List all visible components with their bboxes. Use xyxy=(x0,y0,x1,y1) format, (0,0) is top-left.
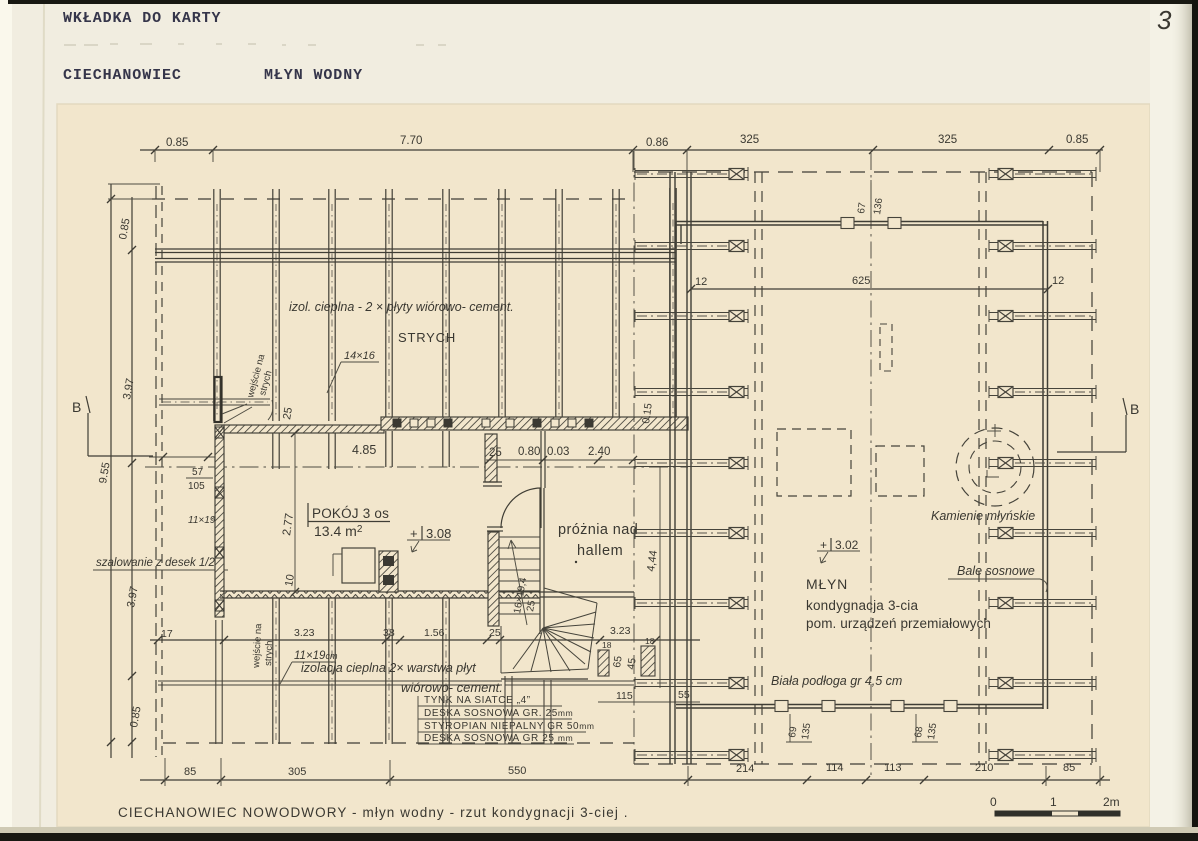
svg-text:325: 325 xyxy=(740,134,759,146)
svg-text:strych: strych xyxy=(263,640,275,666)
svg-text:wiórowo- cement.: wiórowo- cement. xyxy=(401,680,503,695)
svg-text:+: + xyxy=(410,526,418,541)
svg-text:0.03: 0.03 xyxy=(547,446,569,458)
svg-text:DESKA SOSNOWA GR 25 mm: DESKA SOSNOWA GR 25 mm xyxy=(424,733,573,744)
svg-text:7.70: 7.70 xyxy=(400,135,422,147)
svg-text:10: 10 xyxy=(283,573,297,587)
svg-text:1.56: 1.56 xyxy=(424,627,445,639)
svg-text:3: 3 xyxy=(1157,5,1172,35)
svg-text:3.23: 3.23 xyxy=(294,627,315,639)
svg-text:210: 210 xyxy=(975,762,993,774)
svg-text:izol. cieplna - 2 × płyty wiór: izol. cieplna - 2 × płyty wiórowo- cemen… xyxy=(289,300,514,314)
svg-text:CIECHANOWIEC: CIECHANOWIEC xyxy=(63,67,182,84)
svg-text:Kamienie młyńskie: Kamienie młyńskie xyxy=(931,509,1035,523)
svg-text:65: 65 xyxy=(611,655,625,668)
svg-text:25: 25 xyxy=(281,406,295,420)
svg-text:szalowanie z desek 1/2”: szalowanie z desek 1/2” xyxy=(96,557,220,569)
svg-text:0: 0 xyxy=(990,795,997,809)
svg-text:13.4 m2: 13.4 m2 xyxy=(314,523,363,539)
svg-text:hallem: hallem xyxy=(577,543,623,559)
svg-text:3.02: 3.02 xyxy=(835,538,859,552)
svg-text:próżnia nad: próżnia nad xyxy=(558,522,638,538)
svg-text:3.23: 3.23 xyxy=(610,625,631,637)
svg-text:2m: 2m xyxy=(1103,795,1120,809)
svg-text:67: 67 xyxy=(856,201,869,214)
svg-text:325: 325 xyxy=(938,134,957,146)
svg-text:17: 17 xyxy=(161,628,173,640)
svg-text:B: B xyxy=(72,399,81,415)
svg-text:18: 18 xyxy=(645,636,655,646)
svg-text:0.85: 0.85 xyxy=(1066,134,1088,146)
svg-text:115: 115 xyxy=(616,690,633,702)
svg-text:STYROPIAN NIEPALNY GR 50mm: STYROPIAN NIEPALNY GR 50mm xyxy=(424,721,595,732)
svg-text:4.85: 4.85 xyxy=(352,443,376,457)
svg-text:0.86: 0.86 xyxy=(646,137,668,149)
svg-text:38: 38 xyxy=(383,627,395,639)
svg-text:STRYCH: STRYCH xyxy=(398,330,456,345)
svg-text:85: 85 xyxy=(184,766,196,778)
svg-text:214: 214 xyxy=(736,763,754,775)
svg-text:11×19: 11×19 xyxy=(188,515,216,526)
svg-text:25: 25 xyxy=(489,627,501,639)
svg-text:1: 1 xyxy=(1050,795,1057,809)
svg-text:izolacja cieplna 2× warstwa p: izolacja cieplna 2× warstwa płyt xyxy=(301,661,476,675)
svg-text:550: 550 xyxy=(508,765,526,777)
svg-text:18: 18 xyxy=(602,640,612,650)
svg-text:113: 113 xyxy=(884,762,902,774)
svg-text:45: 45 xyxy=(625,657,639,670)
svg-text:55: 55 xyxy=(678,689,690,701)
svg-text:12: 12 xyxy=(1052,275,1064,287)
svg-text:68: 68 xyxy=(913,725,926,738)
svg-text:114: 114 xyxy=(826,762,844,774)
svg-text:105: 105 xyxy=(188,481,205,492)
svg-text:POKÓJ 3 os: POKÓJ 3 os xyxy=(312,506,389,521)
svg-text:Bale sosnowe: Bale sosnowe xyxy=(957,564,1035,578)
svg-text:MŁYN: MŁYN xyxy=(806,576,848,592)
svg-text:305: 305 xyxy=(288,766,306,778)
svg-text:69: 69 xyxy=(787,725,800,738)
svg-text:+: + xyxy=(820,538,827,552)
svg-text:B: B xyxy=(1130,401,1139,417)
svg-text:0.80: 0.80 xyxy=(518,446,540,458)
svg-text:pom. urządzeń przemiałowych: pom. urządzeń przemiałowych xyxy=(806,616,991,631)
svg-text:kondygnacja 3-cia: kondygnacja 3-cia xyxy=(806,598,919,613)
svg-text:625: 625 xyxy=(852,275,870,287)
svg-text:Biała podłoga gr 4,5 cm: Biała podłoga gr 4,5 cm xyxy=(771,674,902,688)
svg-text:CIECHANOWIEC NOWODWORY - mł: CIECHANOWIEC NOWODWORY - młyn wodny - rz… xyxy=(118,805,629,820)
svg-text:MŁYN WODNY: MŁYN WODNY xyxy=(264,67,363,84)
svg-text:12: 12 xyxy=(695,276,707,288)
svg-text:TYNK NA SIATCE „4”: TYNK NA SIATCE „4” xyxy=(424,695,531,706)
svg-text:DESKA SOSNOWA GR. 25mm: DESKA SOSNOWA GR. 25mm xyxy=(424,708,573,719)
svg-text:3.08: 3.08 xyxy=(426,526,451,541)
svg-text:14×16: 14×16 xyxy=(344,350,376,362)
svg-text:2.40: 2.40 xyxy=(588,446,610,458)
svg-text:WKŁADKA DO KARTY: WKŁADKA DO KARTY xyxy=(63,10,221,27)
svg-text:85: 85 xyxy=(1063,762,1075,774)
svg-text:57: 57 xyxy=(192,467,204,478)
svg-text:0.85: 0.85 xyxy=(166,137,188,149)
